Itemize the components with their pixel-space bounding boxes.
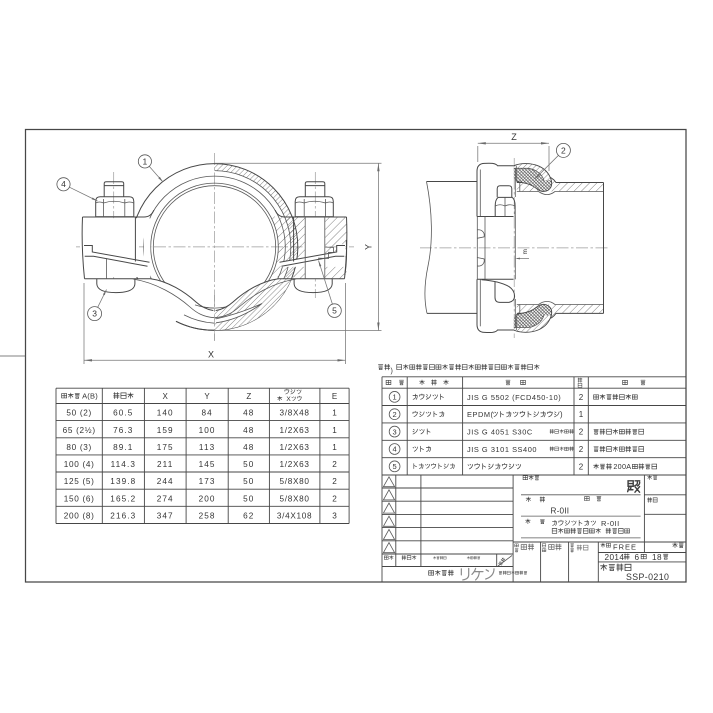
svg-text:165.2: 165.2 (110, 494, 136, 503)
svg-text:2: 2 (579, 428, 584, 437)
svg-text:84: 84 (201, 409, 212, 418)
svg-text:4: 4 (61, 179, 66, 189)
svg-text:2: 2 (332, 460, 337, 469)
svg-text:140: 140 (157, 409, 174, 418)
svg-text:X: X (286, 396, 291, 403)
svg-text:): ) (560, 410, 563, 419)
svg-text:114.3: 114.3 (111, 460, 136, 469)
svg-text:m: m (522, 249, 529, 254)
svg-text:48: 48 (243, 426, 254, 435)
svg-text:50 (2): 50 (2) (66, 409, 92, 418)
svg-text:JIS G 3101 SS400: JIS G 3101 SS400 (467, 445, 537, 454)
svg-text:4: 4 (393, 445, 397, 454)
svg-text:113: 113 (199, 443, 215, 452)
svg-text:50: 50 (243, 477, 254, 486)
svg-text:FREE: FREE (613, 542, 637, 551)
svg-text:R-0II: R-0II (601, 519, 620, 528)
svg-text:48: 48 (243, 443, 254, 452)
svg-text:JIS G 4051 S30C: JIS G 4051 S30C (467, 428, 533, 437)
svg-text:159: 159 (157, 426, 174, 435)
svg-text:2: 2 (579, 393, 584, 402)
svg-text:139.8: 139.8 (110, 477, 136, 486)
svg-text:X: X (163, 392, 169, 401)
svg-text:173: 173 (199, 477, 216, 486)
svg-text:X: X (208, 350, 215, 360)
svg-text:2: 2 (393, 410, 397, 419)
svg-text:50: 50 (243, 460, 254, 469)
svg-text:2: 2 (332, 494, 337, 503)
svg-text:): ) (391, 368, 393, 375)
svg-text:1: 1 (143, 156, 148, 166)
svg-text:62: 62 (243, 512, 254, 521)
svg-text:3: 3 (332, 512, 337, 521)
svg-text:1/2X63: 1/2X63 (280, 443, 310, 452)
svg-text:145: 145 (199, 460, 216, 469)
svg-text:244: 244 (157, 477, 174, 486)
svg-text:E: E (332, 392, 337, 401)
svg-text:5: 5 (332, 306, 337, 316)
svg-text:150 (6): 150 (6) (64, 494, 95, 503)
svg-text:1/2X63: 1/2X63 (280, 426, 310, 435)
svg-text:Z: Z (246, 392, 251, 401)
svg-text:2: 2 (579, 462, 584, 471)
svg-text:5: 5 (393, 462, 397, 471)
svg-text:EPDM(: EPDM( (467, 410, 494, 419)
svg-text:3: 3 (92, 309, 97, 319)
svg-text:3/8X48: 3/8X48 (280, 409, 310, 418)
svg-text:5/8X80: 5/8X80 (280, 494, 310, 503)
svg-text:274: 274 (157, 494, 174, 503)
svg-text:JIS G 5502 (FCD450-10): JIS G 5502 (FCD450-10) (467, 393, 561, 402)
svg-text:3/4X108: 3/4X108 (277, 512, 312, 521)
svg-text:Y: Y (204, 392, 210, 401)
svg-text:200 (8): 200 (8) (64, 512, 95, 521)
svg-text:200A: 200A (613, 462, 631, 471)
svg-text:2: 2 (579, 445, 584, 454)
svg-text:65 (2½): 65 (2½) (63, 426, 96, 435)
svg-text:125 (5): 125 (5) (64, 477, 95, 486)
svg-text:211: 211 (157, 460, 173, 469)
svg-text:175: 175 (157, 443, 174, 452)
svg-text:Z: Z (511, 132, 518, 142)
svg-text:A(B): A(B) (82, 392, 98, 401)
svg-text:5/8X80: 5/8X80 (280, 477, 310, 486)
svg-text:100 (4): 100 (4) (64, 460, 95, 469)
svg-text:1: 1 (393, 393, 397, 402)
svg-text:2: 2 (332, 477, 337, 486)
svg-text:89.1: 89.1 (113, 443, 133, 452)
svg-text:1: 1 (332, 443, 337, 452)
svg-text:2014: 2014 (605, 553, 625, 562)
svg-text:SSP-0210: SSP-0210 (626, 572, 669, 582)
svg-text:1: 1 (332, 409, 337, 418)
svg-text:347: 347 (157, 512, 174, 521)
svg-text:76.3: 76.3 (113, 426, 133, 435)
svg-text:60.5: 60.5 (113, 409, 133, 418)
svg-text:R-0II: R-0II (551, 506, 570, 515)
svg-text:200: 200 (199, 494, 216, 503)
svg-text:1/2X63: 1/2X63 (280, 460, 310, 469)
svg-text:50: 50 (243, 494, 254, 503)
svg-text:Y: Y (364, 244, 374, 250)
svg-text:18: 18 (652, 553, 662, 562)
svg-text:216.3: 216.3 (110, 512, 136, 521)
svg-text:80 (3): 80 (3) (66, 443, 92, 452)
svg-text:1: 1 (579, 410, 584, 419)
svg-text:100: 100 (199, 426, 216, 435)
svg-text:48: 48 (243, 409, 254, 418)
svg-text:3: 3 (393, 427, 397, 436)
svg-text:1: 1 (332, 426, 337, 435)
svg-text:6: 6 (635, 553, 640, 562)
svg-text:258: 258 (199, 512, 216, 521)
svg-text:2: 2 (561, 145, 566, 155)
